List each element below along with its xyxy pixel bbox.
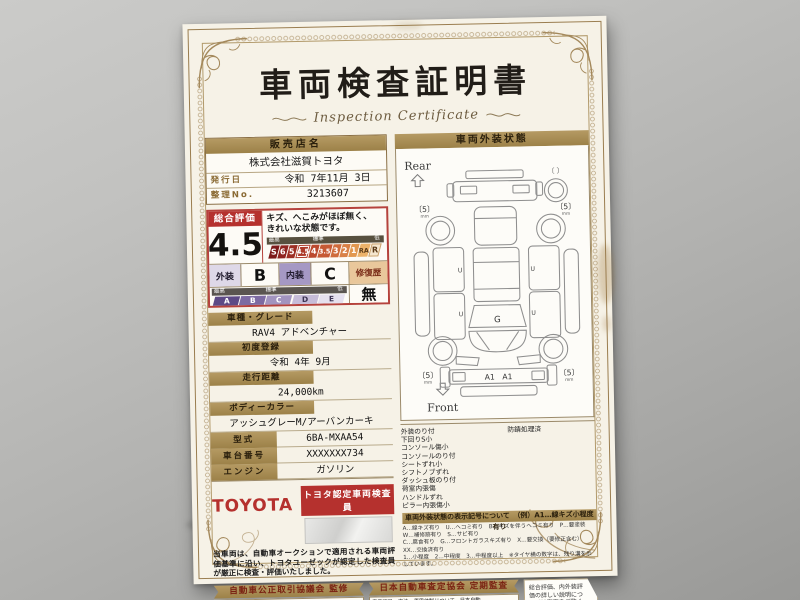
reference-number-row: 整理No. 3213607	[207, 185, 387, 204]
scale-label-best: 最高	[212, 288, 236, 295]
score-scale-bar: S 6 5 4.5 4 3.5 3 2 1 RA	[267, 243, 384, 258]
field-value: 6BA-MXAA54	[277, 429, 393, 446]
legend-line: 1…小程度 2…中程度 3…中程度以上 ※タイヤ横の数字は、残り溝を示しています…	[403, 551, 597, 569]
toyota-logo: TOYOTA	[212, 495, 293, 517]
subtitle-flourish-icon	[273, 114, 307, 123]
grade-scale-bar: A B C D E	[212, 294, 347, 306]
tire-depth-label: 〔5〕	[414, 205, 434, 214]
condition-notes-left: 外装のり付 下回りS小 コンソール傷小 コンソールのり付 シートずれ小 シフトノ…	[401, 426, 509, 510]
grade-cell: E	[318, 294, 346, 304]
repair-history-label: 修復歴	[349, 261, 387, 284]
rating-top-row: 総合評価 4.5 キズ、へこみがほぼ無く、 きれいな状態です。 最高 標準 低	[208, 208, 387, 264]
rating-comment-line2: きれいな状態です。	[266, 222, 383, 235]
field-model-grade: 車種・グレード RAV4 アドベンチャー	[208, 309, 391, 343]
grade-scale-row: 最高 標準 低 A B C D E	[210, 283, 388, 306]
exterior-label: 外装	[209, 264, 241, 287]
tire-depth-unit: mm	[424, 381, 432, 386]
reference-number-label: 整理No.	[207, 188, 269, 204]
inspector-badge-block: トヨタ認定車両検査員	[301, 484, 395, 544]
vehicle-info-column: 販売店名 株式会社滋賀トヨタ 発行日 令和 7年11月 3日 整理No. 321…	[205, 134, 396, 578]
field-first-registration: 初度登録 令和 4年 9月	[209, 339, 392, 373]
door-mark: U	[458, 267, 463, 274]
paper-stain	[392, 21, 422, 30]
certificate-subtitle: Inspection Certificate	[314, 107, 480, 125]
rating-score-block: 総合評価 4.5	[208, 211, 263, 264]
paper-stain	[597, 244, 614, 304]
rating-detail-block: キズ、へこみがほぼ無く、 きれいな状態です。 最高 標準 低 S 6	[262, 208, 387, 262]
exterior-condition-column: 車両外装状態 Rear Front	[395, 130, 598, 575]
field-body-color: ボディーカラー アッシュグレーM/アーバンカーキ	[210, 399, 393, 433]
tire-depth-unit: mm	[562, 212, 570, 217]
interior-grade: C	[311, 262, 349, 285]
fair-trade-council-box: 自動車公正取引協議会 監修 本書は、表示項目・方法・運用体制について、自動車公正…	[214, 583, 365, 600]
grade-cell: B	[239, 296, 267, 306]
field-label: エンジン	[211, 463, 277, 480]
grade-cell: C	[265, 295, 293, 305]
seller-table: 販売店名 株式会社滋賀トヨタ 発行日 令和 7年11月 3日 整理No. 321…	[205, 134, 388, 205]
inspector-sticker	[304, 516, 393, 544]
condition-notes: 外装のり付 下回りS小 コンソール傷小 コンソールのり付 シートずれ小 シフトノ…	[400, 420, 596, 510]
repair-history-value: 無	[350, 284, 388, 303]
desk-background: 車両検査証明書 Inspection Certificate 販売店名 株式会社…	[0, 0, 800, 600]
certificate-title: 車両検査証明書	[203, 52, 588, 108]
front-bumper-mark: A1 A1	[485, 372, 513, 382]
certificate-content: 車両検査証明書 Inspection Certificate 販売店名 株式会社…	[199, 32, 602, 568]
reference-number-value: 3213607	[269, 185, 387, 202]
paper-stain	[602, 316, 610, 332]
appraisal-institute-box: 日本自動車査定協会 定期監査 表示項目・方法・運用体制について、日本自動車査定協…	[369, 579, 520, 600]
condition-note: ピラー内張傷小	[402, 500, 509, 510]
certification-note: 当車両は、自動車オークションで適用される車両評価基準に沿い、トヨタユーゼックが認…	[213, 546, 396, 578]
certificate-document: 車両検査証明書 Inspection Certificate 販売店名 株式会社…	[182, 16, 617, 584]
certificate-subtitle-row: Inspection Certificate	[204, 105, 588, 128]
issue-date-label: 発行日	[206, 173, 268, 188]
scale-label-standard: 標準	[236, 287, 306, 295]
field-value: ガソリン	[277, 461, 393, 478]
rating-label: 総合評価	[208, 211, 261, 227]
issue-date-value: 令和 7年11月 3日	[268, 170, 386, 186]
inspector-badge: トヨタ認定車両検査員	[301, 484, 395, 516]
car-top-view-diagram: 〔 〕	[410, 149, 583, 416]
door-mark: U	[531, 310, 536, 317]
scale-cell: R	[368, 243, 381, 256]
scale-label-low: 低	[306, 286, 347, 294]
field-label: 車台番号	[211, 447, 277, 464]
scale-label-best: 最高	[267, 237, 288, 244]
vehicle-fields: 車種・グレード RAV4 アドベンチャー 初度登録 令和 4年 9月 走行距離 …	[208, 309, 393, 482]
exterior-grade: B	[241, 263, 279, 286]
subtitle-flourish-icon	[486, 110, 520, 119]
door-mark: U	[530, 266, 535, 273]
grade-scale-block: 最高 標準 低 A B C D E	[210, 285, 350, 306]
tire-depth-label: 〔5〕	[556, 202, 576, 211]
field-engine: エンジン ガソリン	[211, 461, 393, 481]
overall-rating-box: 総合評価 4.5 キズ、へこみがほぼ無く、 きれいな状態です。 最高 標準 低	[206, 206, 390, 308]
tire-depth-unit: mm	[565, 378, 573, 383]
field-mileage: 走行距離 24,000km	[209, 369, 392, 403]
condition-note: 防錆処理済	[507, 424, 594, 434]
tire-depth-label: 〔5〕	[418, 371, 438, 380]
windshield-mark: G	[494, 315, 501, 325]
tire-depth-label: 〔5〕	[559, 368, 579, 377]
condition-notes-right: 防錆処理済	[507, 424, 596, 508]
spare-bracket-mark: 〔 〕	[548, 167, 564, 175]
symbol-legend: A…線キズ有り U…ヘコミ有り B…キズを伴うヘコミ有り P…要塗装 W…補修跡…	[403, 522, 598, 569]
grade-cell: D	[291, 295, 319, 305]
backside-note-arrow: 総合評価、内外装評価の詳しい説明については裏面をご覧ください。	[524, 578, 599, 600]
grade-cell: A	[213, 296, 241, 306]
field-value: XXXXXXX734	[277, 445, 393, 462]
certifier-block: TOYOTA トヨタ認定車両検査員	[212, 484, 395, 546]
certificate-columns: 販売店名 株式会社滋賀トヨタ 発行日 令和 7年11月 3日 整理No. 321…	[205, 130, 598, 578]
car-diagram-box: Rear Front	[395, 145, 594, 421]
tire-depth-unit: mm	[420, 215, 428, 220]
field-label: 型式	[211, 432, 277, 449]
interior-label: 内装	[279, 263, 311, 286]
backside-note-text: 総合評価、内外装評価の詳しい説明については裏面をご覧ください。	[529, 583, 584, 600]
door-mark: U	[459, 311, 464, 318]
certificate-footer: 自動車公正取引協議会 監修 本書は、表示項目・方法・運用体制について、自動車公正…	[214, 578, 599, 600]
scale-label-standard: 標準	[288, 236, 349, 244]
rating-score: 4.5	[208, 226, 262, 264]
scale-label-low: 低	[349, 235, 384, 243]
